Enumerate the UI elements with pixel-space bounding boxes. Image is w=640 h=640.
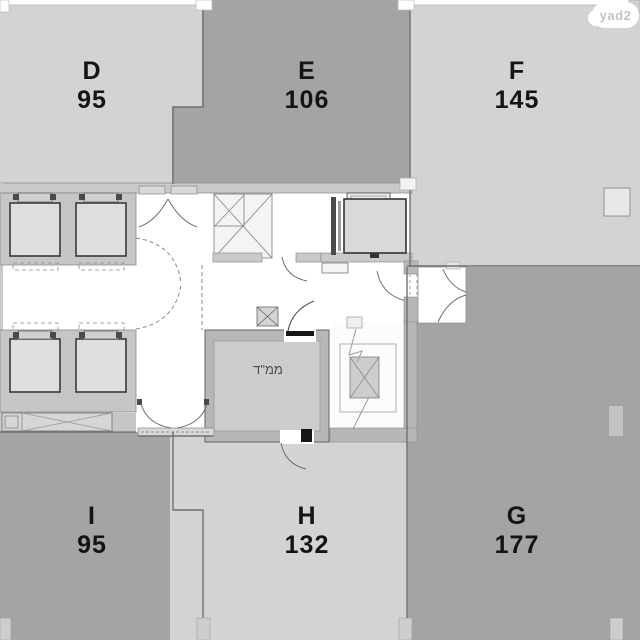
- unit-e-size: 106: [247, 86, 367, 115]
- staircase-right: [330, 317, 417, 442]
- unit-e-letter: E: [247, 57, 367, 86]
- lobby-dashed-doors: [136, 238, 202, 330]
- apartment-g-area: [407, 267, 640, 640]
- stair-shaft-top: [214, 194, 272, 258]
- elevator-bank-top: [0, 193, 136, 270]
- lobby-entry-doors-top: [139, 186, 197, 227]
- stair-vestibule-door: [377, 271, 407, 301]
- unit-i-size: 95: [32, 531, 152, 560]
- unit-i-letter: I: [32, 502, 152, 531]
- elevator-right: [321, 193, 412, 273]
- unit-f-letter: F: [457, 57, 577, 86]
- unit-g-letter: G: [457, 502, 577, 531]
- unit-g-label: G 177: [457, 502, 577, 560]
- yad2-logo-text: yad2: [600, 8, 632, 23]
- apartment-f-area: [410, 5, 640, 266]
- unit-f-label: F 145: [457, 57, 577, 115]
- unit-h-letter: H: [247, 502, 367, 531]
- unit-d-size: 95: [32, 86, 152, 115]
- unit-h-label: H 132: [247, 502, 367, 560]
- apartment-e-area-notch: [172, 107, 202, 183]
- unit-f-size: 145: [457, 86, 577, 115]
- unit-d-letter: D: [32, 57, 152, 86]
- lobby-entry-doors-bottom: [137, 399, 214, 436]
- unit-g-size: 177: [457, 531, 577, 560]
- corridor-door: [282, 257, 307, 281]
- elevator-bank-bottom: [0, 323, 136, 431]
- unit-e-label: E 106: [247, 57, 367, 115]
- unit-i-label: I 95: [32, 502, 152, 560]
- safe-room-label: ממ"ד: [236, 362, 300, 377]
- unit-d-label: D 95: [32, 57, 152, 115]
- duct-box-small: [257, 307, 278, 326]
- floorplan-image: D 95 E 106 F 145 G 177 H 132 I 95 ממ"ד y…: [0, 0, 640, 640]
- yad2-watermark: yad2: [592, 2, 639, 28]
- unit-h-size: 132: [247, 531, 367, 560]
